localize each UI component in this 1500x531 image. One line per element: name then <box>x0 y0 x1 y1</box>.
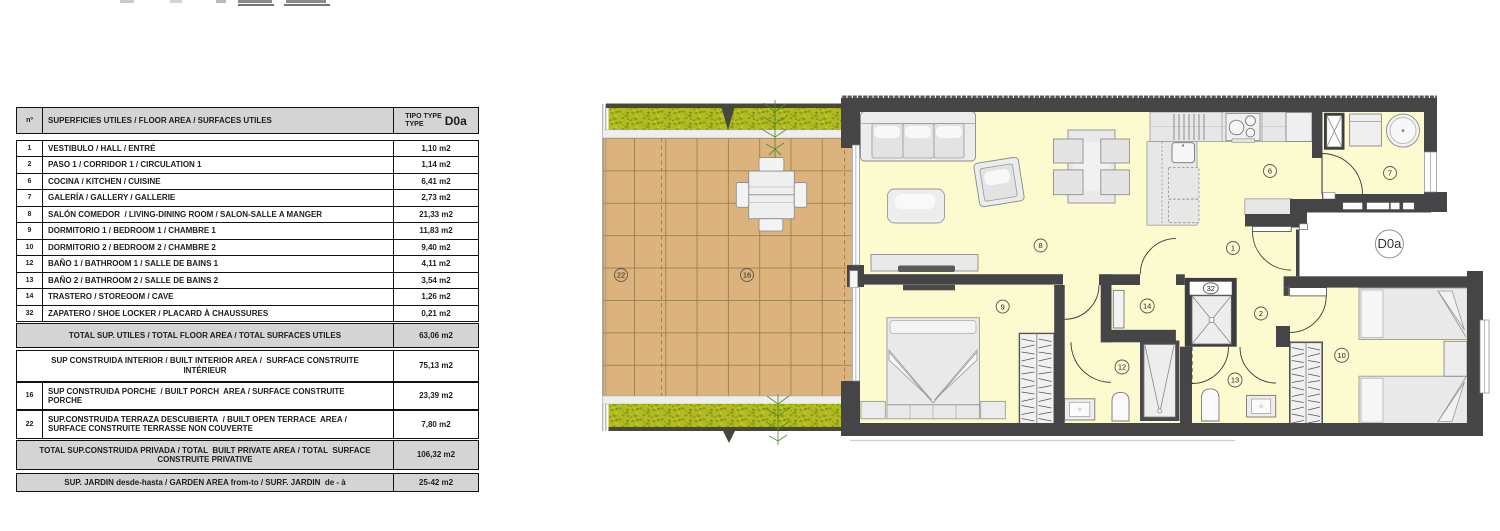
svg-text:6: 6 <box>1268 167 1272 176</box>
svg-text:D0a: D0a <box>1377 236 1402 251</box>
svg-text:32: 32 <box>1207 284 1215 293</box>
svg-text:7: 7 <box>1388 169 1392 178</box>
svg-text:13: 13 <box>1231 376 1239 385</box>
svg-text:12: 12 <box>1118 363 1126 372</box>
svg-text:14: 14 <box>1143 302 1151 311</box>
svg-text:1: 1 <box>1231 244 1235 253</box>
svg-text:2: 2 <box>1259 309 1263 318</box>
svg-text:10: 10 <box>1338 351 1346 360</box>
svg-text:22: 22 <box>617 271 625 280</box>
svg-text:8: 8 <box>1039 241 1043 250</box>
svg-text:9: 9 <box>1001 302 1005 311</box>
svg-text:16: 16 <box>743 271 751 280</box>
